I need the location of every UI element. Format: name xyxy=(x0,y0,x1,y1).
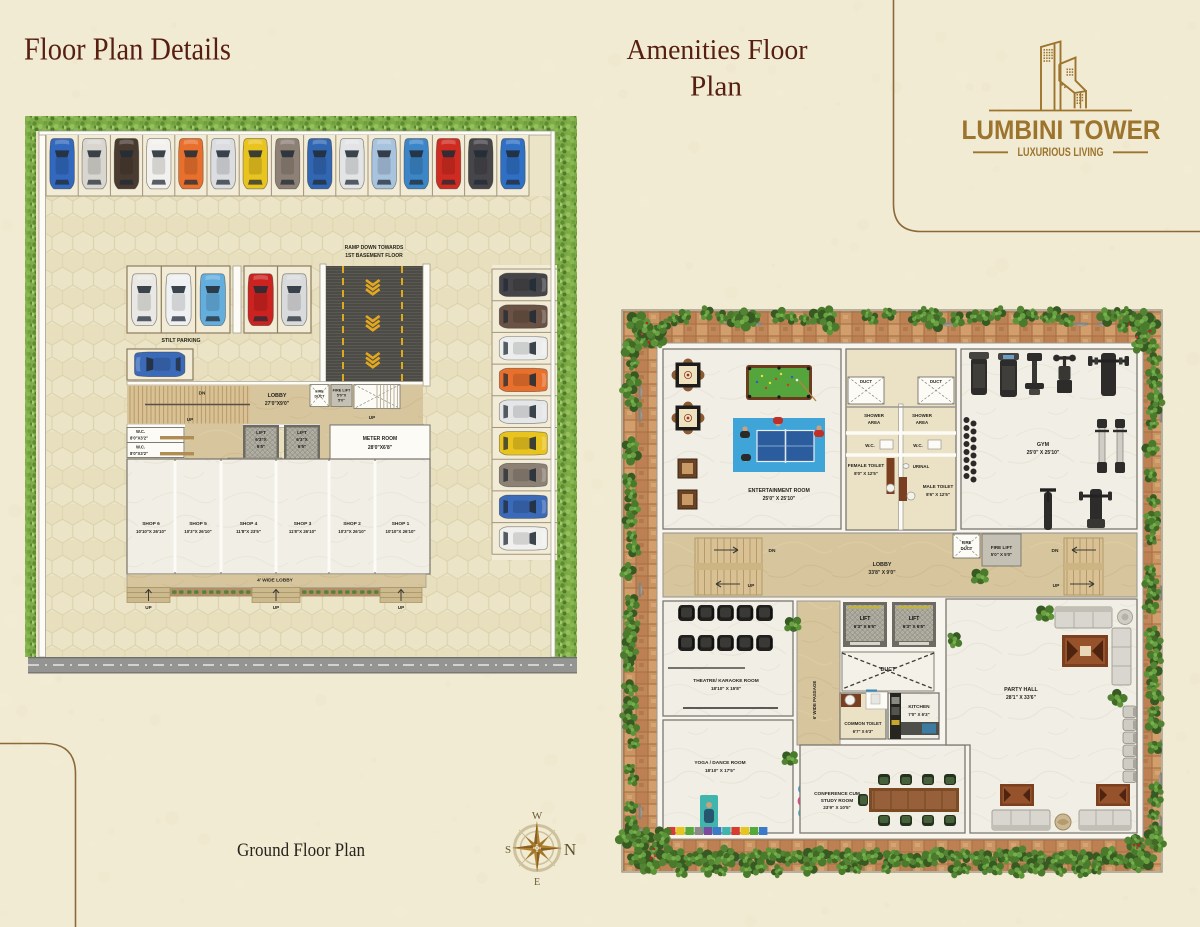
svg-text:6'3"X: 6'3"X xyxy=(296,437,308,442)
svg-text:28'0"X6'8": 28'0"X6'8" xyxy=(368,445,393,451)
svg-text:10'3"X 26'10": 10'3"X 26'10" xyxy=(184,529,212,534)
svg-text:6' WIDE PASSAGE: 6' WIDE PASSAGE xyxy=(812,681,817,720)
svg-text:ENTERTAINMENT ROOM: ENTERTAINMENT ROOM xyxy=(748,488,810,494)
svg-text:DUCT: DUCT xyxy=(961,546,973,551)
svg-text:11'8"X 26'10": 11'8"X 26'10" xyxy=(289,529,316,534)
svg-text:YOGA / DANCE ROOM: YOGA / DANCE ROOM xyxy=(694,760,745,766)
svg-text:LOBBY: LOBBY xyxy=(873,562,892,568)
svg-text:6'3" X 6'5": 6'3" X 6'5" xyxy=(854,624,876,629)
svg-text:STILT PARKING: STILT PARKING xyxy=(162,338,201,344)
svg-text:SHOWER: SHOWER xyxy=(864,413,885,418)
svg-text:FIRE LIFT: FIRE LIFT xyxy=(333,389,351,393)
svg-text:27'0"X9'0": 27'0"X9'0" xyxy=(265,401,290,407)
svg-text:SHOP 4: SHOP 4 xyxy=(240,521,258,527)
svg-text:UP: UP xyxy=(398,605,404,610)
svg-text:METER ROOM: METER ROOM xyxy=(363,436,397,442)
svg-text:6'5": 6'5" xyxy=(298,444,306,449)
svg-text:CONFERENCE CUM: CONFERENCE CUM xyxy=(814,791,860,797)
svg-text:8'6" X 12'5": 8'6" X 12'5" xyxy=(926,492,950,497)
svg-text:UP: UP xyxy=(748,583,755,589)
svg-text:5'0" X 5'0": 5'0" X 5'0" xyxy=(991,552,1012,557)
svg-text:FIRE LIFT: FIRE LIFT xyxy=(991,545,1013,550)
svg-text:DUCT: DUCT xyxy=(860,379,873,384)
svg-text:18'10" X 17'5": 18'10" X 17'5" xyxy=(705,768,735,773)
svg-text:URINAL: URINAL xyxy=(913,464,930,469)
svg-text:SHOP 5: SHOP 5 xyxy=(189,521,207,527)
svg-text:W: W xyxy=(532,810,543,822)
svg-text:KITCHEN: KITCHEN xyxy=(908,704,930,710)
svg-text:W.C.: W.C. xyxy=(136,429,145,434)
svg-text:10'3"X 26'10": 10'3"X 26'10" xyxy=(338,529,366,534)
svg-text:23'9" X 10'5": 23'9" X 10'5" xyxy=(823,805,851,810)
svg-text:UP: UP xyxy=(369,415,375,420)
svg-text:10'10"X 26'10": 10'10"X 26'10" xyxy=(386,529,416,534)
svg-text:28'1" X 33'6": 28'1" X 33'6" xyxy=(1006,695,1037,701)
svg-text:MALE TOILET: MALE TOILET xyxy=(923,484,954,489)
svg-text:LOBBY: LOBBY xyxy=(268,393,287,399)
svg-text:6'3" X 6'5": 6'3" X 6'5" xyxy=(903,624,925,629)
svg-text:W.C.: W.C. xyxy=(136,445,145,450)
svg-text:LIFT: LIFT xyxy=(297,430,307,435)
svg-text:8'0" X 12'5": 8'0" X 12'5" xyxy=(854,471,878,476)
svg-text:5'0"X: 5'0"X xyxy=(337,394,347,398)
svg-text:10'10"X 26'10": 10'10"X 26'10" xyxy=(136,529,166,534)
svg-text:THEATRE/ KARAOKE ROOM: THEATRE/ KARAOKE ROOM xyxy=(693,678,758,684)
svg-text:SHOP 2: SHOP 2 xyxy=(343,521,361,527)
svg-text:Plan: Plan xyxy=(690,71,742,103)
svg-text:Ground Floor Plan: Ground Floor Plan xyxy=(237,840,365,861)
svg-text:25'0" X 25'10": 25'0" X 25'10" xyxy=(763,496,796,502)
svg-text:Floor Plan Details: Floor Plan Details xyxy=(24,32,231,67)
svg-text:LIFT: LIFT xyxy=(860,616,871,622)
svg-text:SHOP 6: SHOP 6 xyxy=(142,521,160,527)
svg-text:FIRE: FIRE xyxy=(962,540,972,545)
svg-text:FIRE: FIRE xyxy=(315,390,324,394)
svg-text:25'0" X 25'10": 25'0" X 25'10" xyxy=(1027,450,1060,456)
svg-text:LUMBINI TOWER: LUMBINI TOWER xyxy=(962,115,1161,145)
svg-text:UP: UP xyxy=(273,605,279,610)
svg-text:W.C.: W.C. xyxy=(913,443,923,448)
svg-text:6'5": 6'5" xyxy=(257,444,265,449)
svg-text:FEMALE TOILET: FEMALE TOILET xyxy=(848,463,885,468)
svg-text:S: S xyxy=(505,844,511,856)
svg-text:STUDY ROOM: STUDY ROOM xyxy=(821,798,853,804)
svg-text:7'0" X 6'3": 7'0" X 6'3" xyxy=(908,712,929,717)
svg-text:18'10" X 15'8": 18'10" X 15'8" xyxy=(711,686,741,691)
svg-text:UP: UP xyxy=(187,417,193,422)
svg-text:AREA: AREA xyxy=(916,420,929,425)
svg-text:N: N xyxy=(564,840,576,859)
svg-text:6'7" X 6'3": 6'7" X 6'3" xyxy=(853,729,873,734)
svg-text:4' WIDE LOBBY: 4' WIDE LOBBY xyxy=(257,578,294,584)
svg-text:DUCT: DUCT xyxy=(930,379,943,384)
svg-text:W.C.: W.C. xyxy=(865,443,875,448)
svg-text:PARTY HALL: PARTY HALL xyxy=(1004,687,1038,693)
svg-text:SHOP 3: SHOP 3 xyxy=(294,521,312,527)
svg-text:DUCT: DUCT xyxy=(881,667,897,673)
svg-text:LIFT: LIFT xyxy=(909,616,920,622)
svg-text:LIFT: LIFT xyxy=(256,430,266,435)
svg-text:5'0": 5'0" xyxy=(338,399,345,403)
svg-text:DUCT: DUCT xyxy=(315,395,326,399)
svg-text:DN: DN xyxy=(199,391,206,396)
svg-text:DN: DN xyxy=(769,548,776,554)
svg-text:8'0"X3'2": 8'0"X3'2" xyxy=(130,436,148,441)
svg-text:SHOWER: SHOWER xyxy=(912,413,933,418)
svg-text:33'8" X 9'0": 33'8" X 9'0" xyxy=(868,570,896,576)
svg-text:DN: DN xyxy=(1052,548,1059,554)
svg-text:RAMP DOWN TOWARDS: RAMP DOWN TOWARDS xyxy=(345,245,404,251)
svg-text:SHOP 1: SHOP 1 xyxy=(392,521,410,527)
svg-text:AREA: AREA xyxy=(868,420,881,425)
svg-text:COMMON TOILET: COMMON TOILET xyxy=(844,721,882,726)
svg-text:8'0"X3'2": 8'0"X3'2" xyxy=(130,451,148,456)
svg-text:UP: UP xyxy=(1053,583,1060,589)
svg-text:Amenities Floor: Amenities Floor xyxy=(627,34,808,66)
svg-text:GYM: GYM xyxy=(1037,442,1050,448)
svg-text:E: E xyxy=(534,877,540,888)
svg-text:UP: UP xyxy=(145,605,151,610)
svg-text:1ST BASEMENT FLOOR: 1ST BASEMENT FLOOR xyxy=(345,253,403,259)
svg-text:11'8"X 23'5": 11'8"X 23'5" xyxy=(236,529,261,534)
svg-text:LUXURIOUS LIVING: LUXURIOUS LIVING xyxy=(1018,147,1104,159)
svg-text:6'3"X: 6'3"X xyxy=(255,437,267,442)
